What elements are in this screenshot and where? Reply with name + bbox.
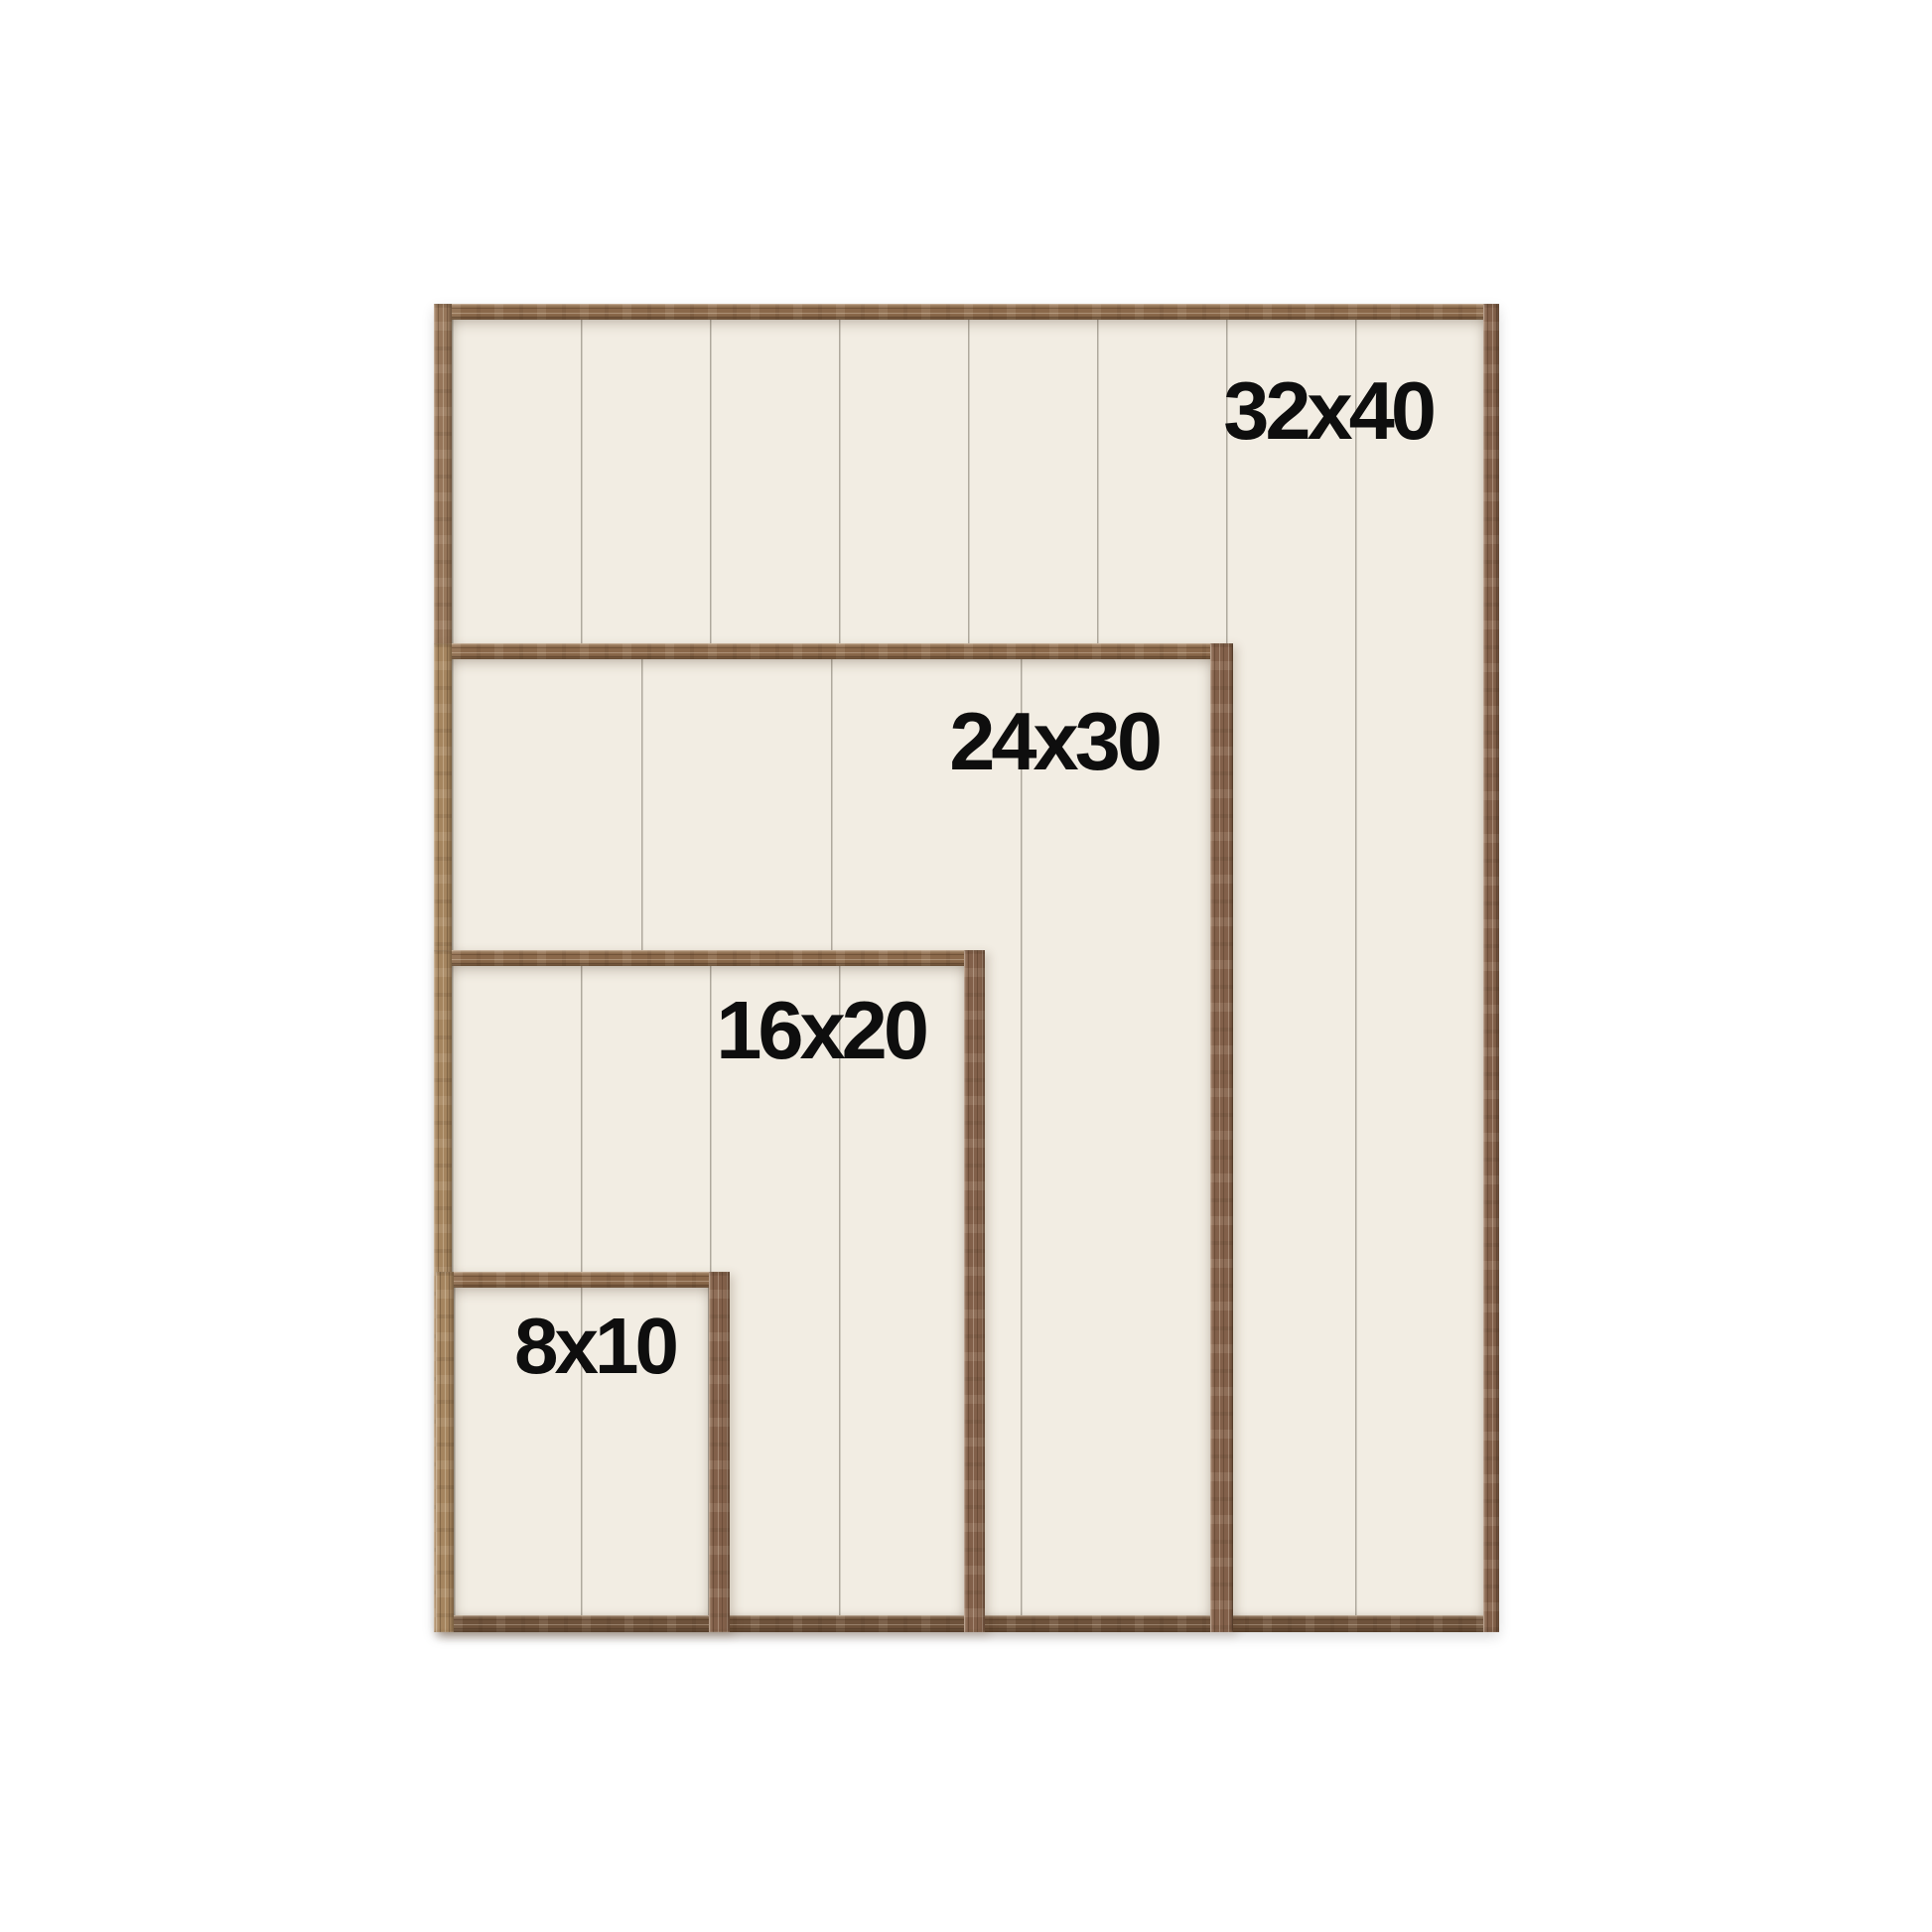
frame-32x40-wood-right — [1483, 304, 1499, 1632]
frame-8x10-wood-top — [436, 1272, 730, 1288]
frame-24x30-wood-top — [434, 643, 1233, 659]
frame-8x10-wood-bottom — [436, 1615, 730, 1632]
frame-8x10-wood-left — [436, 1272, 454, 1632]
size-label-16x20: 16x20 — [716, 989, 925, 1071]
size-label-8x10: 8x10 — [514, 1307, 675, 1386]
frame-16x20-wood-top — [434, 950, 985, 966]
size-label-32x40: 32x40 — [1223, 369, 1433, 452]
frame-32x40-wood-top — [434, 304, 1499, 320]
frame-size-comparison: 32x40 24x30 16x20 8x10 — [0, 0, 1932, 1932]
size-label-24x30: 24x30 — [949, 700, 1159, 782]
frame-8x10: 8x10 — [436, 1272, 730, 1632]
frame-16x20-wood-right — [964, 950, 985, 1632]
frame-24x30-wood-right — [1210, 643, 1233, 1632]
frame-8x10-wood-right — [709, 1272, 730, 1632]
